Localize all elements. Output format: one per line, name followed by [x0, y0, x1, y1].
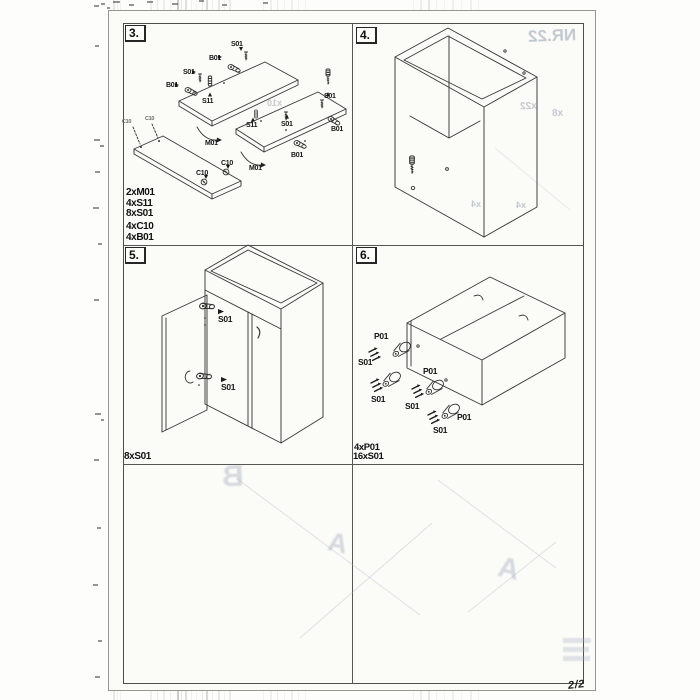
- step5-number-box: 5.: [125, 247, 146, 264]
- ghost-bleedthrough-text: x4: [471, 199, 481, 209]
- scan-speck: [147, 1, 153, 3]
- parts-list-item: 2xM01: [126, 188, 155, 198]
- grid-divider-row2: [124, 464, 583, 465]
- part-label: P01: [423, 367, 437, 376]
- ghost-bleedthrough-text: NR.22: [528, 25, 577, 47]
- part-label: C10: [196, 170, 208, 177]
- ghost-bleedthrough-text: x10: [267, 98, 282, 109]
- step3-number-box: 3.: [125, 25, 146, 42]
- scan-speck: [101, 419, 104, 421]
- scan-speck: [222, 4, 227, 6]
- part-label: S01: [371, 395, 385, 404]
- scan-speck: [172, 3, 178, 5]
- scan-speck: [95, 413, 101, 415]
- scan-speck: [113, 1, 120, 3]
- scan-speck: [98, 640, 102, 642]
- scan-speck: [94, 299, 99, 301]
- parts-list-item: 4xC10: [126, 222, 153, 232]
- parts-list-item: 16xS01: [353, 452, 383, 462]
- scan-speck: [97, 527, 101, 529]
- part-label: S01: [231, 41, 243, 48]
- part-label: B01: [291, 152, 303, 159]
- ghost-bleedthrough-letter: B: [221, 460, 244, 495]
- scan-speck: [94, 5, 99, 7]
- parts-list-item: 8xS01: [124, 452, 151, 462]
- ghost-smudge: [563, 638, 591, 643]
- scan-speck: [95, 676, 100, 678]
- ghost-smudge: [563, 656, 590, 661]
- scan-speck: [95, 45, 99, 47]
- part-label: B01: [209, 55, 221, 62]
- part-label: B01: [166, 82, 178, 89]
- ghost-bleedthrough-text: x22: [520, 101, 537, 113]
- part-label: S01: [183, 69, 195, 76]
- scanned-assembly-instruction-sheet: NR.22 x22 x8 x10 x4 x4 B A A: [0, 0, 700, 700]
- part-label: S01: [358, 358, 372, 367]
- scan-speck: [263, 2, 268, 4]
- part-label: M01: [205, 140, 218, 147]
- part-label: M01: [249, 165, 262, 172]
- scan-speck: [94, 459, 99, 461]
- part-label: S01: [433, 426, 447, 435]
- scan-speck: [199, 0, 204, 2]
- ghost-bleedthrough-text: x4: [516, 200, 526, 210]
- scan-speck: [94, 139, 100, 141]
- scan-speck: [129, 4, 134, 6]
- part-label: S01: [281, 121, 293, 128]
- part-label: C10: [122, 120, 131, 126]
- part-label: S01: [218, 315, 232, 324]
- grid-divider-vertical: [352, 24, 353, 683]
- step6-number-box: 6.: [356, 247, 377, 264]
- part-label: S01: [324, 93, 336, 100]
- scan-speck: [107, 7, 110, 9]
- scan-speck: [93, 584, 98, 586]
- scan-speck: [101, 3, 105, 5]
- parts-list-item: 8xS01: [126, 209, 153, 219]
- ghost-bleedthrough-text: x8: [552, 108, 564, 119]
- parts-list-item: 4xB01: [126, 233, 153, 243]
- grid-divider-row1: [124, 245, 583, 246]
- step4-number-box: 4.: [356, 27, 377, 44]
- ghost-smudge: [563, 647, 589, 652]
- scan-speck: [98, 243, 102, 245]
- part-label: C10: [145, 117, 154, 123]
- part-label: S01: [405, 402, 419, 411]
- part-label: S01: [221, 383, 235, 392]
- part-label: S11: [246, 122, 257, 129]
- part-label: P01: [374, 332, 388, 341]
- scan-speck: [93, 207, 99, 209]
- part-label: C10: [221, 160, 233, 167]
- part-label: P01: [457, 413, 471, 422]
- scan-speck: [95, 171, 100, 173]
- part-label: B01: [331, 126, 343, 133]
- scan-speck: [100, 145, 104, 147]
- part-label: S11: [202, 98, 213, 105]
- page-number: 2/2: [567, 678, 585, 692]
